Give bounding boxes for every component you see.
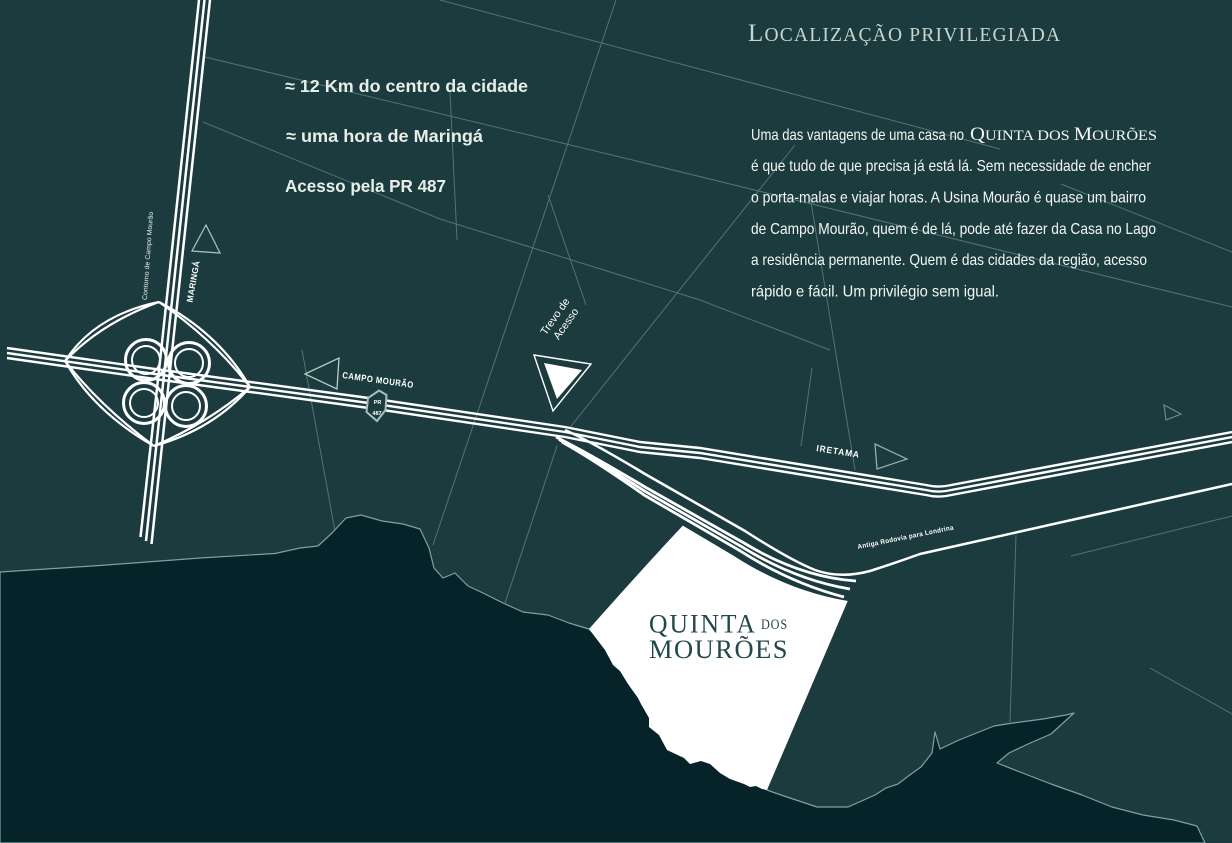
- svg-text:Uma das vantagens de uma casa: Uma das vantagens de uma casa no: [751, 127, 964, 144]
- svg-text:de Campo Mourão, quem é de lá,: de Campo Mourão, quem é de lá, pode até …: [751, 221, 1156, 238]
- svg-text:Acesso pela PR 487: Acesso pela PR 487: [285, 176, 446, 196]
- svg-text:LOCALIZAÇÃO PRIVILEGIADA: LOCALIZAÇÃO PRIVILEGIADA: [748, 20, 1061, 47]
- svg-text:a residência permanente. Quem: a residência permanente. Quem é das cida…: [751, 252, 1147, 269]
- svg-text:QUINTA DOS MOURÕES: QUINTA DOS MOURÕES: [970, 125, 1157, 145]
- svg-text:o porta-malas e viajar horas.: o porta-malas e viajar horas. A Usina Mo…: [751, 190, 1146, 207]
- svg-text:rápido e fácil. Um privilégio: rápido e fácil. Um privilégio sem igual.: [751, 284, 999, 301]
- svg-text:≈ 12 Km do centro da cidade: ≈ 12 Km do centro da cidade: [285, 76, 528, 96]
- svg-text:é que tudo de que precisa já e: é que tudo de que precisa já está lá. Se…: [751, 158, 1152, 175]
- svg-text:PR: PR: [374, 400, 382, 406]
- svg-text:487: 487: [372, 411, 381, 417]
- svg-text:≈ uma hora de Maringá: ≈ uma hora de Maringá: [286, 126, 483, 146]
- svg-text:MOURÕES: MOURÕES: [649, 635, 789, 664]
- svg-text:DOS: DOS: [761, 617, 788, 633]
